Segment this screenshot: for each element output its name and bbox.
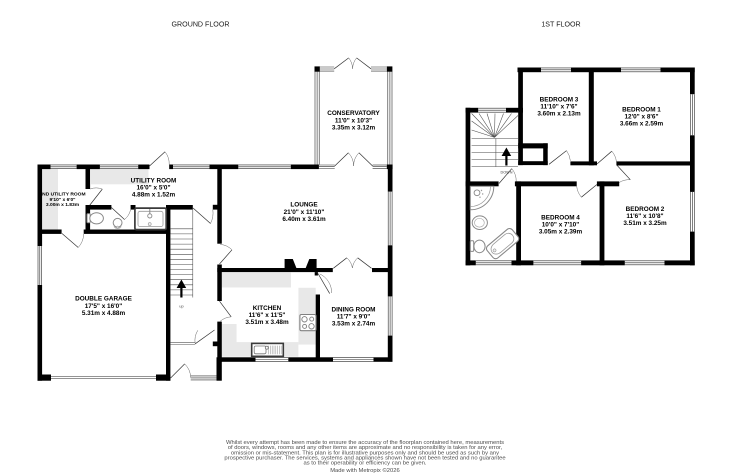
svg-text:KITCHEN: KITCHEN [253, 305, 282, 312]
svg-text:2ND UTILITY ROOM: 2ND UTILITY ROOM [39, 192, 85, 198]
svg-text:UTILITY ROOM: UTILITY ROOM [131, 178, 177, 185]
svg-text:Made with Metropix ©2026: Made with Metropix ©2026 [330, 467, 400, 474]
svg-text:3.51m x 3.25m: 3.51m x 3.25m [623, 220, 667, 227]
svg-text:3.60m x 2.13m: 3.60m x 2.13m [537, 110, 581, 117]
svg-text:DOWN: DOWN [500, 170, 512, 174]
svg-text:3.00m x 1.83m: 3.00m x 1.83m [46, 202, 80, 208]
svg-text:11'7" x 9'0": 11'7" x 9'0" [337, 314, 371, 321]
svg-text:as to their operability or eff: as to their operability or efficiency ca… [303, 461, 426, 467]
svg-text:21'0" x 11'10": 21'0" x 11'10" [284, 209, 325, 216]
svg-text:11'6" x 11'5": 11'6" x 11'5" [249, 312, 286, 319]
svg-text:BEDROOM 4: BEDROOM 4 [541, 214, 580, 221]
svg-text:10'0" x 7'10": 10'0" x 7'10" [542, 221, 580, 228]
svg-text:5.31m x 4.88m: 5.31m x 4.88m [82, 310, 126, 317]
svg-text:BEDROOM 2: BEDROOM 2 [626, 206, 665, 213]
svg-text:3.05m x 2.39m: 3.05m x 2.39m [539, 228, 583, 235]
svg-text:6.40m x 3.61m: 6.40m x 3.61m [282, 216, 326, 223]
svg-text:11'10" x 7'6": 11'10" x 7'6" [540, 103, 577, 110]
svg-text:DINING ROOM: DINING ROOM [331, 306, 375, 313]
svg-text:LOUNGE: LOUNGE [290, 202, 318, 209]
svg-text:17'5" x 16'0": 17'5" x 16'0" [85, 303, 123, 310]
svg-text:3.35m x 3.12m: 3.35m x 3.12m [332, 124, 376, 131]
svg-text:11'6" x 10'8": 11'6" x 10'8" [626, 213, 663, 220]
svg-text:1ST FLOOR: 1ST FLOOR [541, 21, 580, 29]
svg-text:DOUBLE GARAGE: DOUBLE GARAGE [75, 296, 133, 303]
svg-text:3.66m x 2.59m: 3.66m x 2.59m [620, 121, 664, 128]
svg-text:16'0" x 5'0": 16'0" x 5'0" [137, 185, 171, 192]
svg-text:BEDROOM 3: BEDROOM 3 [540, 96, 579, 103]
svg-text:9'10" x 6'0": 9'10" x 6'0" [49, 197, 75, 203]
svg-text:CONSERVATORY: CONSERVATORY [327, 110, 380, 117]
svg-text:GROUND FLOOR: GROUND FLOOR [172, 21, 230, 29]
svg-text:4.88m x 1.52m: 4.88m x 1.52m [132, 192, 176, 199]
svg-text:3.53m x 2.74m: 3.53m x 2.74m [332, 321, 376, 328]
svg-text:3.51m x 3.48m: 3.51m x 3.48m [245, 319, 289, 326]
svg-text:BEDROOM 1: BEDROOM 1 [622, 107, 661, 114]
svg-text:11'0" x 10'3": 11'0" x 10'3" [335, 117, 372, 124]
svg-text:up: up [179, 305, 183, 309]
svg-text:12'0" x 8'6": 12'0" x 8'6" [625, 114, 659, 121]
